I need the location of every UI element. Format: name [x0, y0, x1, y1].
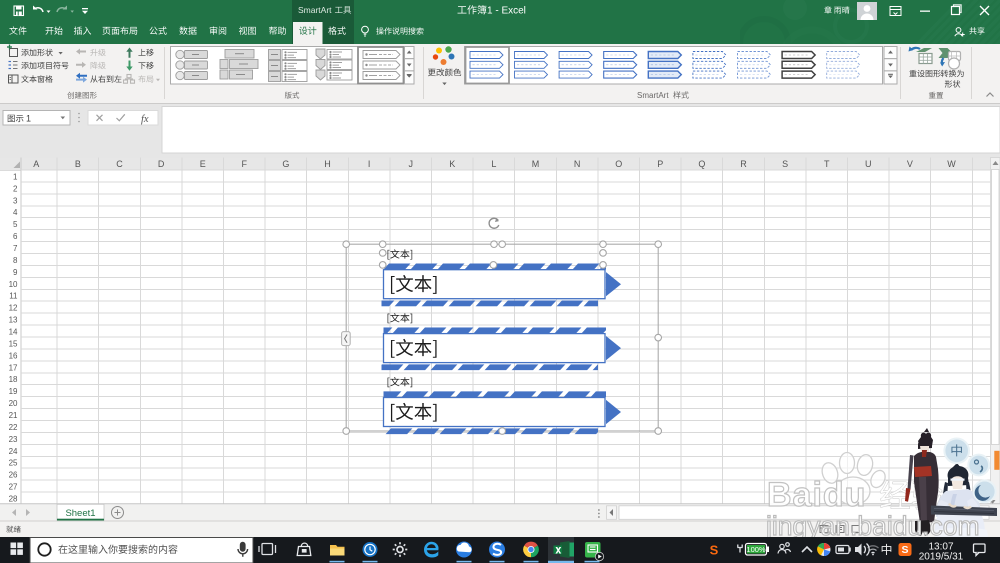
svg-text:V: V	[907, 159, 913, 169]
svg-text:19: 19	[9, 387, 18, 396]
svg-text:26: 26	[9, 471, 18, 480]
svg-text:12: 12	[9, 304, 18, 313]
svg-text:14: 14	[9, 327, 18, 336]
svg-text:24: 24	[9, 447, 18, 456]
svg-text:8: 8	[13, 256, 18, 265]
svg-text:N: N	[574, 159, 581, 169]
svg-text:25: 25	[9, 459, 18, 468]
svg-text:3: 3	[13, 196, 18, 205]
svg-text:2019/5/31: 2019/5/31	[919, 552, 964, 563]
svg-text:K: K	[449, 159, 455, 169]
svg-text:Q: Q	[698, 159, 705, 169]
svg-text:fx: fx	[141, 114, 149, 125]
svg-text:9: 9	[13, 268, 18, 277]
svg-text:A: A	[33, 159, 39, 169]
svg-text:D: D	[158, 159, 165, 169]
svg-text:6: 6	[13, 232, 18, 241]
svg-text:28: 28	[9, 495, 18, 504]
svg-text:Baidu: Baidu	[767, 476, 866, 514]
svg-text:17: 17	[9, 363, 18, 372]
svg-text:100%: 100%	[746, 545, 766, 554]
svg-text:13: 13	[9, 316, 18, 325]
svg-text:U: U	[865, 159, 872, 169]
svg-text:SmartArt: SmartArt	[298, 5, 332, 15]
svg-text:23: 23	[9, 435, 18, 444]
svg-text:Sheet1: Sheet1	[65, 508, 95, 519]
svg-text:O: O	[615, 159, 622, 169]
svg-text:H: H	[324, 159, 331, 169]
svg-text:10: 10	[9, 280, 18, 289]
svg-text:4: 4	[13, 208, 18, 217]
svg-text:1 - Excel: 1 - Excel	[487, 6, 526, 17]
svg-text:S: S	[901, 544, 908, 556]
svg-text:J: J	[408, 159, 413, 169]
svg-text:20: 20	[9, 399, 18, 408]
svg-text:S: S	[710, 543, 719, 558]
svg-text:R: R	[740, 159, 747, 169]
svg-text:21: 21	[9, 411, 18, 420]
svg-text:P: P	[657, 159, 663, 169]
svg-text:2: 2	[13, 184, 18, 193]
svg-text:16: 16	[9, 351, 18, 360]
svg-text:5: 5	[13, 220, 18, 229]
svg-text:S: S	[782, 159, 788, 169]
svg-text:22: 22	[9, 423, 18, 432]
svg-text:15: 15	[9, 339, 18, 348]
svg-text:jingyan.baidu.com: jingyan.baidu.com	[765, 511, 980, 541]
svg-text:B: B	[75, 159, 81, 169]
svg-text:27: 27	[9, 483, 18, 492]
svg-text:1: 1	[13, 172, 18, 181]
svg-text:C: C	[116, 159, 123, 169]
svg-text:G: G	[282, 159, 289, 169]
svg-text:I: I	[368, 159, 371, 169]
svg-text:7: 7	[13, 244, 18, 253]
svg-text:E: E	[200, 159, 206, 169]
svg-text:11: 11	[9, 292, 18, 301]
svg-text:F: F	[242, 159, 248, 169]
svg-text:L: L	[491, 159, 496, 169]
svg-text:T: T	[824, 159, 830, 169]
svg-text:18: 18	[9, 375, 18, 384]
svg-text:M: M	[532, 159, 540, 169]
svg-text:SmartArt: SmartArt	[637, 91, 669, 100]
svg-text:W: W	[947, 159, 956, 169]
svg-text:1: 1	[26, 114, 31, 124]
